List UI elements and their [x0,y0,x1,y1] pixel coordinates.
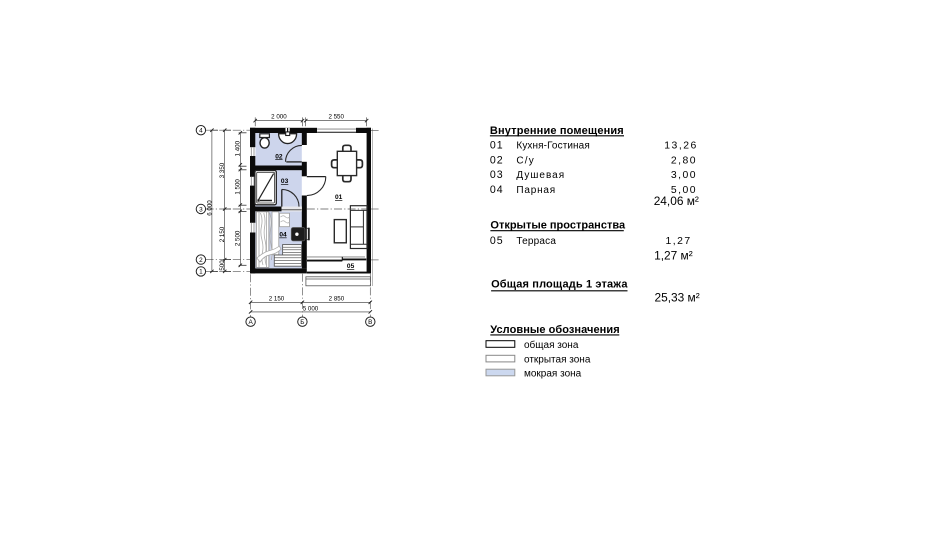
svg-text:24,06 м²: 24,06 м² [654,194,699,208]
svg-text:2: 2 [199,257,203,264]
svg-text:2,80: 2,80 [671,155,697,166]
svg-text:05: 05 [347,263,355,270]
svg-text:02: 02 [490,154,504,166]
svg-text:1,27: 1,27 [665,236,691,247]
svg-text:6 000: 6 000 [206,200,213,216]
svg-text:Кухня-Гостиная: Кухня-Гостиная [516,141,589,152]
svg-text:открытая зона: открытая зона [524,355,591,366]
svg-text:500: 500 [219,260,226,271]
svg-text:4: 4 [199,128,203,135]
svg-text:Общая площадь 1 этажа: Общая площадь 1 этажа [491,279,628,291]
svg-text:Б: Б [300,319,304,326]
svg-text:1,27 м²: 1,27 м² [654,248,693,262]
svg-text:Условные обозначения: Условные обозначения [490,324,619,336]
svg-text:13,26: 13,26 [664,141,698,152]
svg-text:25,33 м²: 25,33 м² [655,291,700,305]
svg-text:С/у: С/у [516,155,535,166]
svg-text:01: 01 [335,194,343,201]
svg-text:3: 3 [199,206,203,213]
svg-text:общая зона: общая зона [524,339,579,351]
svg-text:2 150: 2 150 [269,296,285,303]
svg-text:02: 02 [275,153,283,160]
svg-text:2 000: 2 000 [271,113,287,120]
svg-text:Терраса: Терраса [516,236,556,247]
svg-text:В: В [368,319,372,326]
svg-text:2 150: 2 150 [219,226,226,242]
svg-text:1 500: 1 500 [235,179,242,195]
svg-text:1 400: 1 400 [235,140,242,156]
svg-text:2 500: 2 500 [235,230,242,246]
svg-text:03: 03 [490,169,504,181]
svg-text:5 000: 5 000 [303,305,319,312]
svg-text:2 850: 2 850 [329,296,345,303]
svg-text:1: 1 [199,269,203,276]
svg-text:Душевая: Душевая [516,170,565,181]
svg-text:3,00: 3,00 [671,170,697,181]
svg-text:05: 05 [490,235,504,247]
svg-text:Открытые пространства: Открытые пространства [490,220,626,232]
svg-text:04: 04 [490,184,504,196]
svg-text:2 550: 2 550 [328,113,344,120]
svg-text:мокрая зона: мокрая зона [524,368,582,379]
svg-text:Внутренние помещения: Внутренние помещения [490,125,624,137]
svg-text:04: 04 [279,232,287,239]
svg-text:01: 01 [490,140,504,152]
svg-text:А: А [248,319,253,326]
svg-text:3 350: 3 350 [219,162,226,178]
svg-text:Парная: Парная [516,185,556,196]
svg-text:03: 03 [281,178,289,185]
